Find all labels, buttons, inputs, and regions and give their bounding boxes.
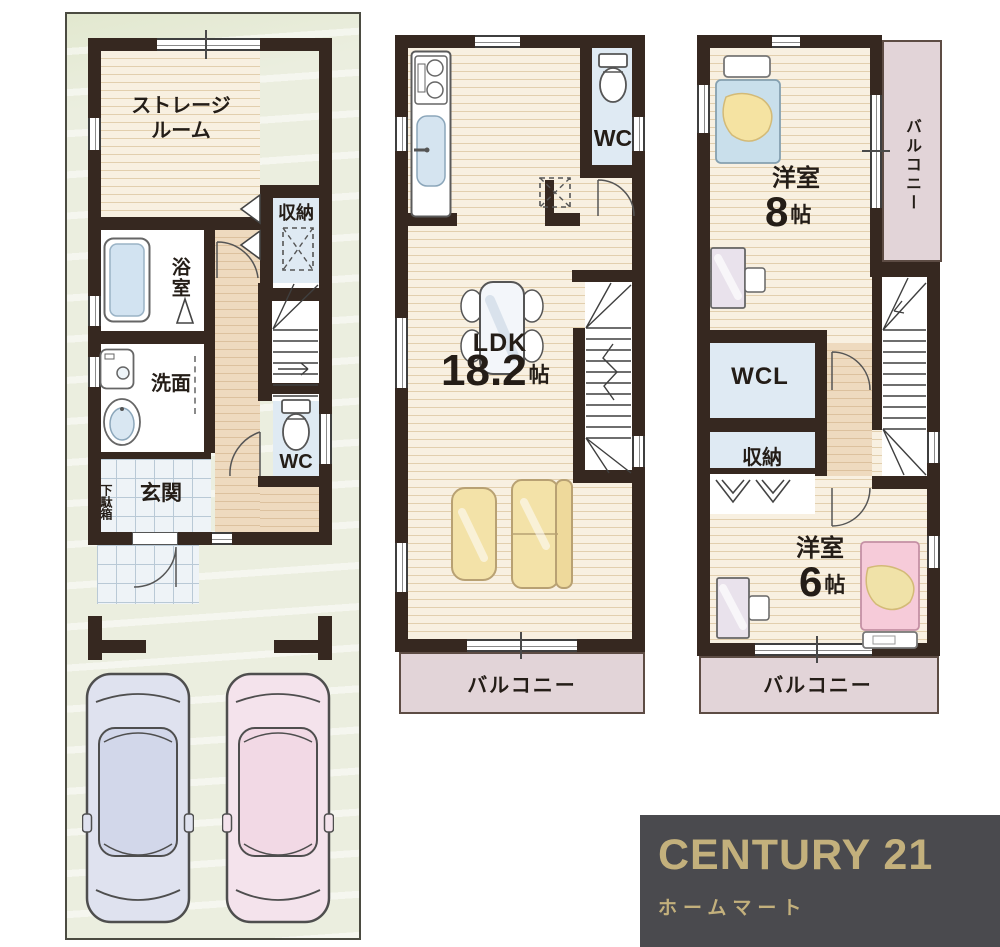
wall bbox=[273, 185, 332, 198]
century21-logo-shop: ホームマート bbox=[658, 893, 807, 920]
storage-room-label-line1: ストレージ bbox=[116, 94, 246, 119]
wall bbox=[178, 532, 212, 545]
wc-label-1f: WC bbox=[274, 450, 318, 475]
wall bbox=[872, 277, 882, 430]
wall bbox=[258, 283, 272, 401]
window bbox=[697, 85, 710, 133]
bed-pink-icon bbox=[858, 540, 922, 650]
stairs bbox=[272, 283, 319, 401]
century21-logo: CENTURY 21 ホームマート bbox=[640, 815, 1000, 947]
wash-basin-icon bbox=[101, 396, 143, 448]
wall bbox=[697, 643, 755, 656]
storage-room-label: ストレージ ルーム bbox=[116, 94, 246, 150]
closet-label-3f: 収納 bbox=[733, 446, 791, 471]
wall bbox=[872, 476, 940, 489]
window bbox=[395, 318, 408, 388]
wall bbox=[697, 418, 815, 432]
room6-size-unit: 帖 bbox=[822, 569, 845, 602]
window bbox=[632, 436, 645, 467]
closet-label: 収納 bbox=[272, 202, 320, 225]
ldk-size-unit: 帖 bbox=[527, 359, 550, 392]
desk-icon bbox=[715, 576, 771, 640]
shoe-cabinet-label: 下駄箱 bbox=[98, 473, 113, 531]
door-arc bbox=[830, 486, 872, 528]
window-tick bbox=[862, 150, 890, 152]
window bbox=[157, 38, 260, 51]
window bbox=[772, 35, 800, 48]
wall bbox=[318, 616, 332, 660]
wall bbox=[88, 38, 101, 545]
wall bbox=[97, 452, 211, 459]
window bbox=[475, 35, 520, 48]
balcony-side-label: バルコニー bbox=[901, 98, 921, 232]
stairs bbox=[882, 277, 927, 476]
room8-size: 8 帖 bbox=[765, 192, 811, 232]
window bbox=[927, 536, 940, 568]
balcony-label-2f: バルコニー bbox=[466, 674, 578, 699]
washing-machine-icon bbox=[99, 348, 135, 390]
entrance-label: 玄関 bbox=[129, 481, 193, 507]
ldk-size-value: 18.2 bbox=[441, 350, 527, 392]
desk-icon bbox=[708, 246, 768, 310]
closet-hatch-icon bbox=[281, 226, 315, 272]
wc-label-2f: WC bbox=[592, 124, 634, 153]
floor-plan-flyer: ストレージ ルーム 収納 浴室 洗面 玄関 下駄箱 WC bbox=[0, 0, 1000, 947]
room6-size: 6 帖 bbox=[799, 562, 845, 602]
bathtub-icon bbox=[103, 237, 151, 323]
window bbox=[467, 639, 577, 652]
window-tick bbox=[520, 632, 522, 659]
bed-blue-icon bbox=[714, 53, 782, 165]
stairs bbox=[585, 282, 632, 474]
window bbox=[395, 117, 408, 151]
wcl-label: WCL bbox=[727, 362, 793, 392]
wall bbox=[697, 330, 823, 343]
wall bbox=[573, 328, 585, 470]
wall bbox=[580, 165, 645, 178]
washroom-label: 洗面 bbox=[139, 372, 203, 397]
wall bbox=[97, 331, 204, 344]
ldk-size: 18.2 帖 bbox=[441, 350, 550, 392]
window-tick bbox=[816, 636, 818, 663]
wall bbox=[274, 640, 332, 653]
wall bbox=[88, 532, 132, 545]
window-tick bbox=[205, 30, 207, 59]
door-arc bbox=[830, 350, 872, 392]
wall bbox=[204, 223, 215, 453]
hall-floor bbox=[260, 487, 320, 532]
wall bbox=[88, 640, 146, 653]
wall bbox=[395, 639, 467, 652]
window bbox=[927, 432, 940, 463]
balcony-bottom-label: バルコニー bbox=[760, 674, 876, 699]
entrance-door-leaf bbox=[132, 532, 178, 545]
wall bbox=[258, 476, 332, 487]
sofa-icon bbox=[450, 476, 574, 592]
door-arc bbox=[228, 430, 262, 477]
car-pink bbox=[222, 666, 334, 928]
window bbox=[88, 118, 101, 150]
window bbox=[319, 414, 332, 464]
room6-size-value: 6 bbox=[799, 562, 822, 602]
storage-room-label-line2: ルーム bbox=[116, 119, 246, 144]
wall bbox=[580, 48, 592, 165]
toilet-icon bbox=[276, 398, 316, 454]
wall bbox=[520, 35, 645, 48]
floor-hatch-icon bbox=[538, 176, 572, 209]
window bbox=[395, 543, 408, 592]
kitchen-counter-icon bbox=[410, 50, 452, 218]
door-arc bbox=[596, 178, 636, 218]
toilet-icon bbox=[596, 52, 630, 106]
wall bbox=[815, 330, 827, 476]
wall bbox=[577, 639, 645, 652]
wall bbox=[88, 616, 102, 660]
wall bbox=[232, 532, 332, 545]
folding-door-icon bbox=[712, 477, 792, 507]
room8-size-value: 8 bbox=[765, 192, 788, 232]
door-arc bbox=[215, 240, 260, 280]
window bbox=[212, 532, 232, 545]
car-blue bbox=[82, 666, 194, 928]
century21-logo-brand: CENTURY 21 bbox=[658, 831, 933, 880]
door-arc bbox=[132, 545, 178, 589]
wall bbox=[572, 270, 645, 282]
bathroom-label: 浴室 bbox=[167, 245, 191, 311]
room8-size-unit: 帖 bbox=[788, 199, 811, 232]
window bbox=[755, 643, 872, 656]
window bbox=[88, 296, 101, 326]
